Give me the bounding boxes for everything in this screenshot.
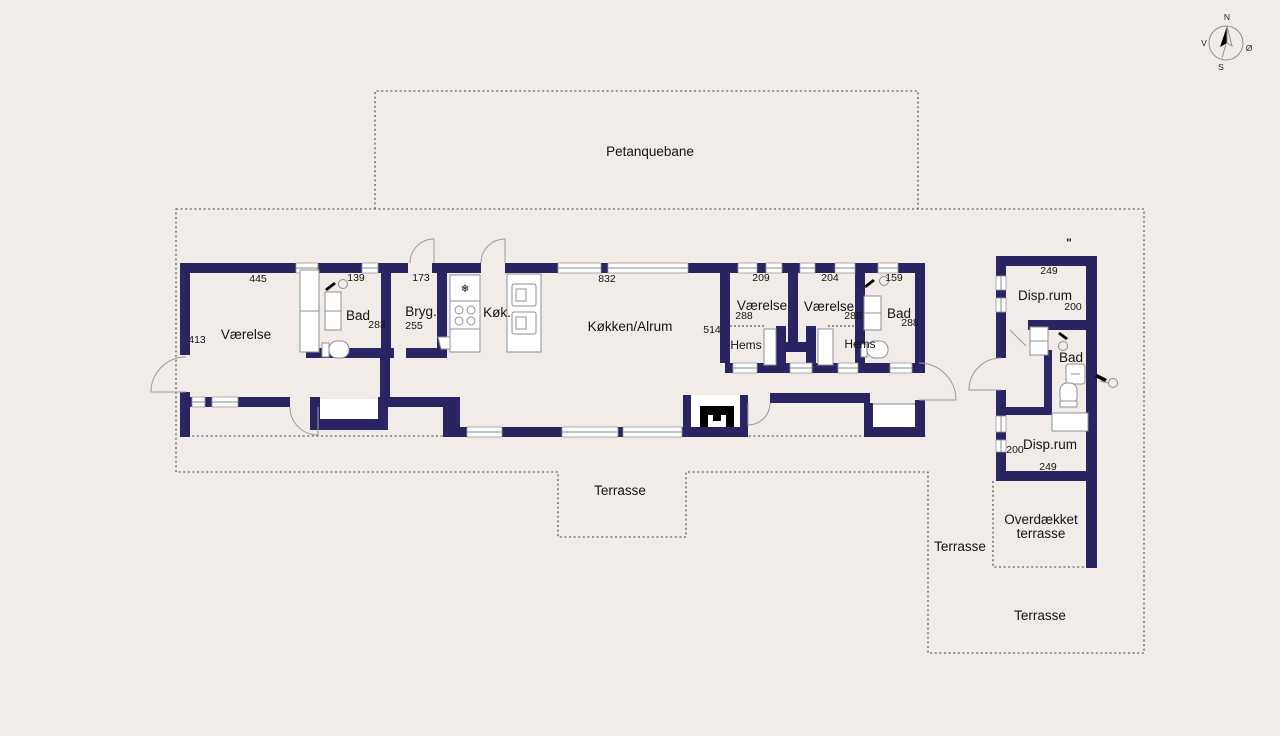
southeast-nook-floor — [873, 405, 915, 427]
compass-west-label: V — [1201, 38, 1207, 48]
petanque-label: Petanquebane — [606, 144, 694, 159]
fireplace-core — [713, 412, 721, 421]
porch-bay-floor — [320, 399, 378, 419]
compass-south-label: S — [1218, 62, 1224, 72]
site-labels: Petanquebane Terrasse Terrasse Terrasse … — [594, 144, 1078, 623]
dim-kitchen-living-depth: 514 — [703, 324, 721, 336]
room-label-kitchen: Køk. — [483, 305, 511, 320]
room-label-annex-bath: Bad — [1059, 350, 1083, 365]
bath-west-fixtures — [300, 270, 349, 358]
shower-rose-icon — [339, 280, 348, 289]
room-label-bedroom-west: Værelse — [221, 327, 271, 342]
dim-storage-north-width: 249 — [1040, 265, 1058, 277]
fireplace-leg — [726, 406, 734, 427]
loft-ladder — [818, 329, 833, 365]
compass-needle-outline — [1227, 26, 1232, 46]
dim-bath-east-width: 159 — [885, 272, 903, 284]
snowflake-icon: ❄ — [461, 283, 470, 295]
covered-terrace-label-line2: terrasse — [1017, 526, 1066, 541]
dim-bedroom-mid1-width: 209 — [752, 272, 770, 284]
dim-utility-width: 173 — [412, 272, 430, 284]
covered-terrace-label-line1: Overdækket — [1004, 512, 1078, 527]
room-label-kitchen-living: Køkken/Alrum — [588, 319, 673, 334]
room-label-bath-west: Bad — [346, 308, 370, 323]
annex-fixtures — [1030, 327, 1118, 431]
floor-plan-drawing: ❄ — [0, 0, 1280, 736]
dim-bedroom-mid2-width: 204 — [821, 272, 839, 284]
shower-icon — [325, 282, 336, 291]
floor-plan-canvas: ❄ — [0, 0, 1280, 736]
main-house-walls — [180, 263, 925, 437]
compass-needle-tail — [1222, 44, 1226, 58]
toilet-bowl-icon — [329, 341, 349, 358]
dim-bedroom-mid1-depth: 288 — [735, 310, 753, 322]
dim-bedroom-west-depth: 413 — [188, 334, 206, 346]
compass-rose: N S V Ø — [1201, 12, 1253, 72]
dim-bath-west-depth: 283 — [368, 319, 386, 331]
loft-ladder — [764, 329, 776, 365]
compass-east-label: Ø — [1246, 43, 1253, 53]
kitchen-counter — [450, 329, 480, 352]
dim-storage-north-depth: 200 — [1064, 301, 1082, 313]
shower-icon — [864, 279, 875, 288]
dim-bedroom-mid2-depth: 288 — [844, 310, 862, 322]
annex-counter — [1052, 413, 1088, 431]
terrace-annex-west-label: Terrasse — [934, 539, 986, 554]
toilet-tank-icon — [322, 343, 329, 357]
room-label-utility: Bryg. — [405, 304, 437, 319]
dim-utility-depth: 255 — [405, 320, 423, 332]
compass-north-label: N — [1224, 12, 1230, 22]
outdoor-shower-rose-icon — [1109, 379, 1118, 388]
ditto-mark: " — [1066, 236, 1072, 250]
loft-label-mid2: Hems — [844, 337, 875, 351]
compass-needle-icon — [1220, 26, 1227, 47]
fireplace-leg — [700, 406, 708, 427]
loft-label-mid1: Hems — [730, 338, 761, 352]
terrace-south-label: Terrasse — [594, 483, 646, 498]
terrace-annex-south-label: Terrasse — [1014, 608, 1066, 623]
stove-icon — [450, 301, 480, 329]
dim-storage-south-depth: 200 — [1006, 444, 1024, 456]
site-boundaries — [176, 91, 1144, 653]
dim-storage-south-width: 249 — [1039, 461, 1057, 473]
toilet-tank-icon — [1060, 401, 1077, 407]
dim-bath-east-depth: 288 — [901, 317, 919, 329]
dim-bath-west-width: 139 — [347, 272, 365, 284]
dim-kitchen-living-width: 832 — [598, 273, 616, 285]
dim-bedroom-west-width: 445 — [249, 273, 267, 285]
shower-icon — [1058, 332, 1068, 340]
room-label-storage-south: Disp.rum — [1023, 437, 1077, 452]
